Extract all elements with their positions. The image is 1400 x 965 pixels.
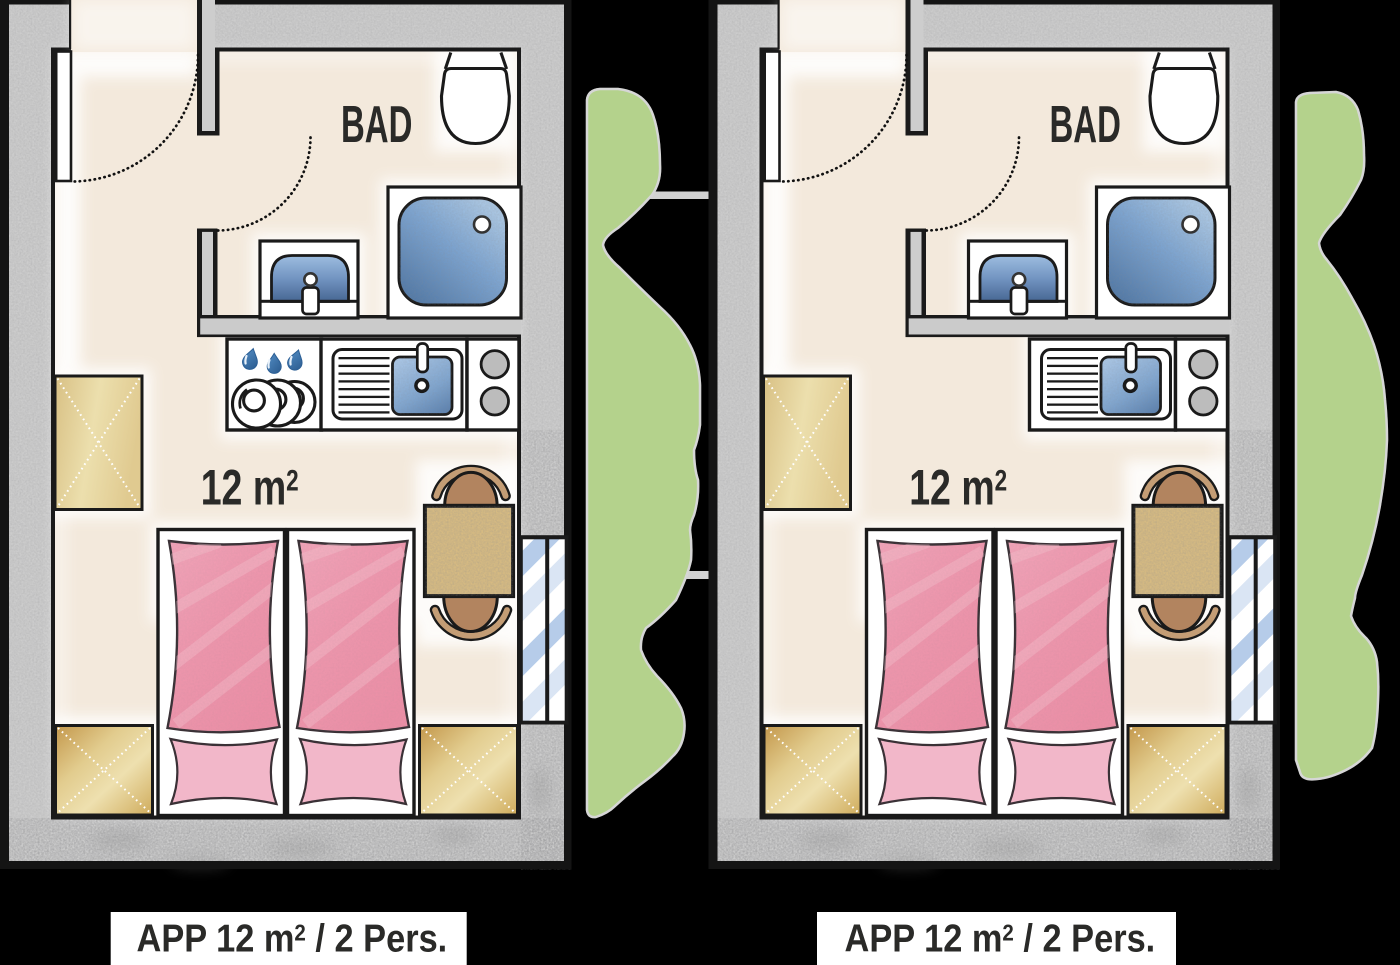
svg-text:APP 12 m2 / 2 Pers.: APP 12 m2 / 2 Pers. xyxy=(137,917,448,960)
svg-text:APP 12 m2 / 2 Pers.: APP 12 m2 / 2 Pers. xyxy=(845,917,1156,960)
svg-text:BAD: BAD xyxy=(1050,95,1121,154)
svg-text:BAD: BAD xyxy=(341,95,412,154)
svg-text:12 m2: 12 m2 xyxy=(909,460,1007,515)
svg-text:12 m2: 12 m2 xyxy=(201,460,299,515)
